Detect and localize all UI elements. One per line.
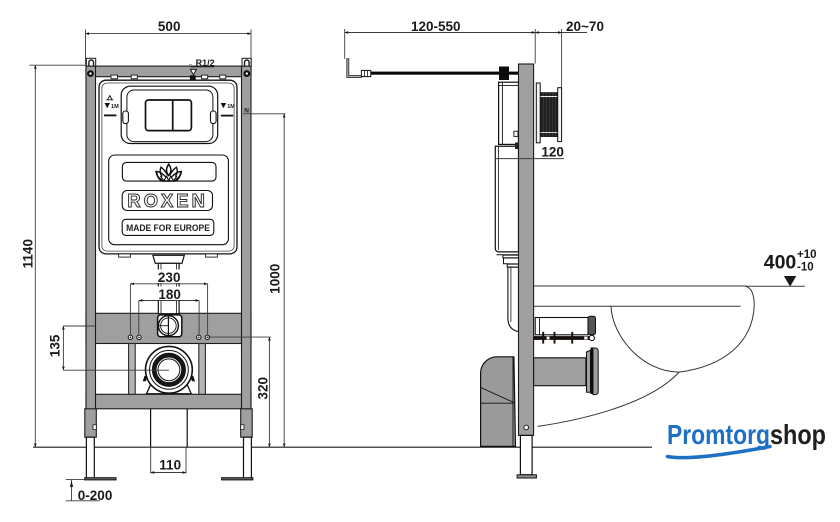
svg-text:1140: 1140: [20, 239, 35, 268]
svg-text:500: 500: [158, 19, 181, 34]
svg-text:20~70: 20~70: [566, 19, 604, 34]
svg-text:110: 110: [159, 458, 181, 473]
svg-text:230: 230: [158, 270, 181, 285]
svg-text:120: 120: [541, 144, 564, 159]
svg-text:Promtorg: Promtorg: [667, 419, 770, 450]
svg-text:0-200: 0-200: [78, 488, 113, 503]
svg-text:1M: 1M: [111, 104, 119, 110]
svg-text:120-550: 120-550: [411, 19, 461, 34]
svg-text:-10: -10: [797, 262, 814, 274]
svg-text:+10: +10: [797, 249, 817, 261]
svg-text:1000: 1000: [267, 264, 282, 294]
svg-text:135: 135: [47, 334, 62, 357]
svg-text:180: 180: [158, 287, 181, 302]
svg-text:400: 400: [764, 251, 797, 273]
svg-text:320: 320: [256, 377, 271, 400]
svg-text:shop: shop: [770, 419, 826, 450]
svg-text:MADE FOR EUROPE: MADE FOR EUROPE: [126, 223, 210, 233]
svg-text:1M: 1M: [227, 104, 235, 110]
svg-text:ROXEN: ROXEN: [127, 190, 207, 211]
